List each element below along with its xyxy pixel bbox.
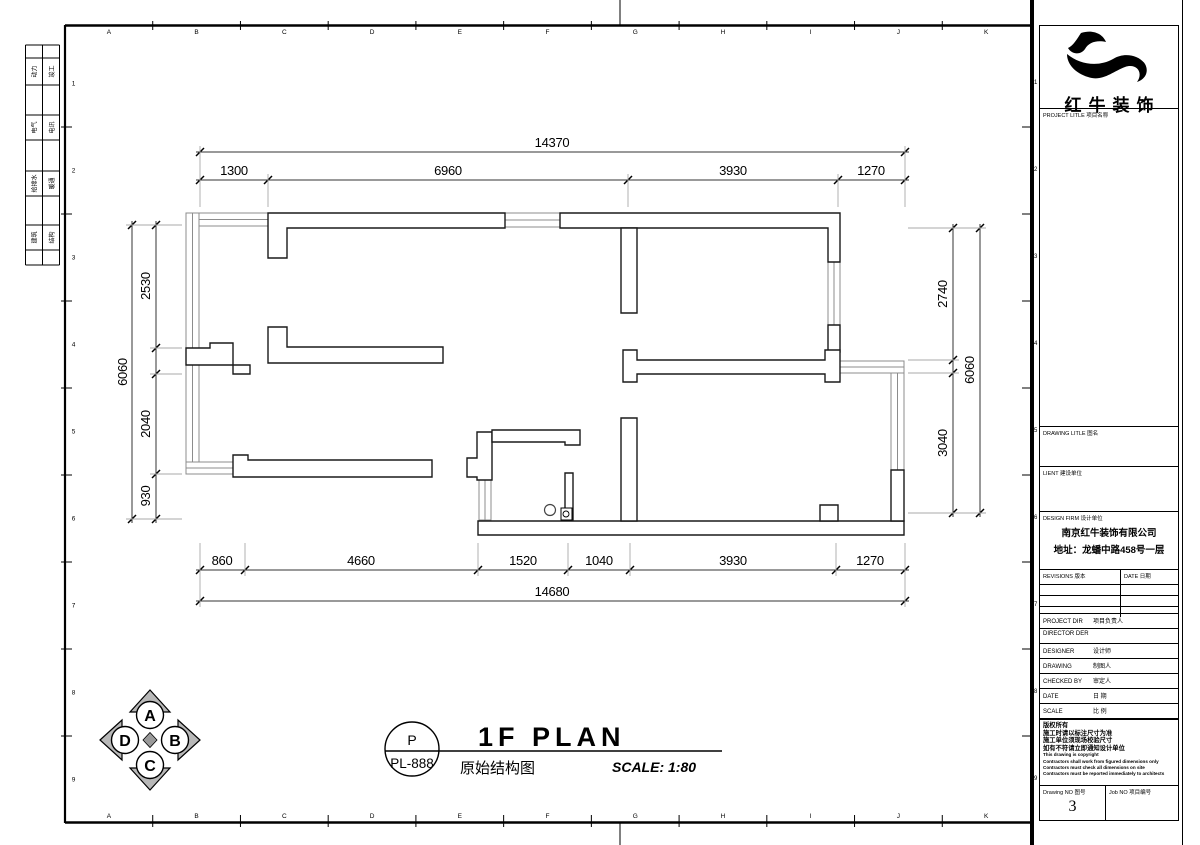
- row-label-cn: 审定人: [1093, 679, 1111, 685]
- note-line: 如有不符请立即通知设计单位: [1043, 745, 1178, 753]
- job-no-label: Job NO 项目编号: [1106, 786, 1178, 796]
- grid-number: 1: [72, 81, 76, 88]
- grid-letter: J: [897, 29, 900, 36]
- row-label-cn: 设计师: [1093, 649, 1111, 655]
- drawing-canvas: AABBCCDDEEFFGGHHIIJJKK123456789 动力 竣工 电气…: [0, 0, 1030, 845]
- grid-letter: C: [282, 29, 287, 36]
- wall: [820, 505, 838, 521]
- window-right-lower-vertical: [891, 373, 904, 470]
- compass-label-b: B: [169, 733, 181, 750]
- dim-label: 3040: [935, 429, 950, 457]
- floor-plan: [186, 213, 904, 535]
- revision-row-empty: [1040, 584, 1178, 595]
- discipline-label: 电气: [31, 121, 39, 133]
- dim-label: 6060: [115, 358, 130, 386]
- wall: [268, 213, 505, 258]
- grid-number: 7: [72, 603, 76, 610]
- dim-label: 2740: [935, 280, 950, 308]
- note-line: 施工单位须现场校验尺寸: [1043, 737, 1178, 745]
- drawing-number-section: Drawing NO 图号 3 Job NO 项目编号: [1040, 785, 1178, 821]
- row-label-en: DRAWING: [1043, 664, 1093, 670]
- grid-letter: D: [370, 813, 375, 820]
- discipline-label: 给排水: [31, 174, 39, 192]
- dim-label: 14680: [535, 584, 570, 599]
- design-firm-name: 南京红牛装饰有限公司: [1040, 525, 1178, 539]
- grid-letter: C: [282, 813, 287, 820]
- drawing-sheet: AABBCCDDEEFFGGHHIIJJKK123456789 动力 竣工 电气…: [0, 0, 1200, 845]
- dim-label: 4660: [347, 553, 375, 568]
- grid-number: 2: [1034, 167, 1037, 173]
- window-right-upper: [828, 262, 840, 325]
- title-block-table: 红牛装饰 PROJECT LITLE 项目名称 DRAWING LITLE 图名…: [1039, 25, 1179, 821]
- revisions-section: REVISIONS 版本 DATE 日期: [1040, 569, 1178, 613]
- dim-label: 3930: [719, 553, 747, 568]
- window-left-balcony: [186, 213, 199, 473]
- client-section: LIENT 建设单位: [1040, 466, 1178, 511]
- grid-number: 6: [72, 516, 76, 523]
- note-line: Contractors must be reported immediately…: [1043, 771, 1178, 777]
- company-logo: [1059, 29, 1159, 85]
- drawing-title-area: P PL-888 1F PLAN 原始结构图 SCALE: 1:80: [385, 722, 722, 777]
- dim-label: 860: [212, 553, 233, 568]
- compass-label-d: D: [119, 733, 131, 750]
- grid-letter: A: [107, 29, 112, 36]
- revision-row-empty: [1040, 606, 1178, 617]
- grid-letter: F: [546, 29, 550, 36]
- project-title-section: PROJECT LITLE 项目名称: [1040, 108, 1178, 426]
- design-firm-address: 地址：龙蟠中路458号一层: [1040, 542, 1178, 556]
- dim-label: 3930: [719, 163, 747, 178]
- drawing-no-value: 3: [1040, 798, 1105, 816]
- grid-letter: J: [897, 813, 900, 820]
- grid-letter: E: [458, 813, 463, 820]
- grid-letter: D: [370, 29, 375, 36]
- drawing-title-section: DRAWING LITLE 图名: [1040, 426, 1178, 466]
- grid-number: 8: [72, 690, 76, 697]
- compass-label-c: C: [144, 758, 156, 775]
- discipline-strip: 动力 竣工 电气 电讯 给排水 暖通 建筑 结构: [26, 45, 60, 265]
- window-bottom-left: [186, 462, 233, 474]
- wall: [828, 325, 840, 352]
- grid-letter: H: [721, 813, 726, 820]
- stamp-number: PL-888: [390, 756, 434, 771]
- grid-letter: F: [546, 813, 550, 820]
- wall: [621, 418, 637, 521]
- revisions-label: REVISIONS 版本: [1040, 570, 1121, 584]
- row-label-cn: 日 期: [1093, 694, 1107, 700]
- discipline-label: 暖通: [48, 177, 56, 189]
- grid-number: 5: [1034, 428, 1037, 434]
- grid-letter: I: [810, 29, 812, 36]
- director-row: DIRECTOR DER: [1040, 628, 1178, 643]
- grid-letter: G: [633, 29, 638, 36]
- wall: [478, 521, 904, 535]
- grid-number: 9: [1034, 776, 1037, 782]
- grid-number: 4: [1034, 341, 1037, 347]
- grid-letter: G: [633, 813, 638, 820]
- grid-number: 7: [1034, 602, 1037, 608]
- drawing-title-label: DRAWING LITLE 图名: [1040, 427, 1178, 437]
- drawing-no-label: Drawing NO 图号: [1040, 786, 1105, 796]
- grid-number: 2: [72, 168, 76, 175]
- dim-label: 2530: [138, 272, 153, 300]
- sheet-frame: [65, 0, 1030, 845]
- dim-label: 6960: [434, 163, 462, 178]
- copyright-notes: 版权所有 施工时请以标注尺寸为准 施工单位须现场校验尺寸 如有不符请立即通知设计…: [1040, 718, 1178, 785]
- grid-number: 3: [72, 255, 76, 262]
- grid-letter: K: [984, 813, 989, 820]
- grid-letter: A: [107, 813, 112, 820]
- design-firm-label: DESIGN FIRM 设计单位: [1040, 512, 1178, 522]
- client-label: LIENT 建设单位: [1040, 467, 1178, 477]
- discipline-label: 动力: [31, 65, 39, 77]
- logo-section: 红牛装饰: [1040, 26, 1178, 108]
- row-label-en: CHECKED BY: [1043, 679, 1093, 685]
- title-block-right-border: [1182, 0, 1183, 845]
- note-line: 版权所有: [1043, 722, 1178, 730]
- wall: [621, 228, 637, 313]
- dim-label: 6060: [962, 356, 977, 384]
- window-top-middle: [505, 213, 560, 227]
- row-label-cn: 比 例: [1093, 709, 1107, 715]
- job-no-cell: Job NO 项目编号: [1106, 786, 1178, 821]
- wall: [891, 470, 904, 521]
- grid-number: 8: [1034, 689, 1037, 695]
- designer-row: DESIGNER设计师: [1040, 643, 1178, 658]
- floor-drain-symbol: [545, 505, 556, 516]
- window-right-lower-horизontal: [840, 361, 904, 373]
- discipline-label: 竣工: [48, 65, 56, 77]
- design-firm-section: DESIGN FIRM 设计单位 南京红牛装饰有限公司 地址：龙蟠中路458号一…: [1040, 511, 1178, 569]
- grid-number: 3: [1034, 254, 1037, 260]
- row-label-en: DIRECTOR DER: [1043, 631, 1093, 637]
- wall: [623, 350, 840, 382]
- grid-number: 6: [1034, 515, 1037, 521]
- scale-row: SCALE比 例: [1040, 703, 1178, 718]
- wall: [560, 213, 840, 262]
- stamp-top-text: P: [407, 732, 416, 748]
- row-label-en: PROJECT DIR: [1043, 619, 1093, 625]
- checked-by-row: CHECKED BY审定人: [1040, 673, 1178, 688]
- row-label-cn: 项目负责人: [1093, 619, 1123, 625]
- plan-scale: SCALE: 1:80: [612, 759, 696, 775]
- row-label-en: SCALE: [1043, 709, 1093, 715]
- dim-label: 930: [138, 486, 153, 507]
- project-title-label: PROJECT LITLE 项目名称: [1040, 109, 1178, 119]
- discipline-label: 建筑: [31, 231, 39, 243]
- wall: [233, 455, 432, 477]
- grid-number: 1: [1034, 80, 1037, 86]
- dim-label: 2040: [138, 410, 153, 438]
- row-label-en: DATE: [1043, 694, 1093, 700]
- compass-center-diamond: [143, 733, 157, 748]
- compass-label-a: A: [144, 708, 156, 725]
- plan-title-en: 1F PLAN: [478, 722, 626, 752]
- date-row: DATE日 期: [1040, 688, 1178, 703]
- dim-label: 1520: [509, 553, 537, 568]
- drawing-row: DRAWING制图人: [1040, 658, 1178, 673]
- grid-number: 5: [72, 429, 76, 436]
- dim-label: 14370: [535, 135, 570, 150]
- grid-letter: K: [984, 29, 989, 36]
- grid-letter: B: [194, 813, 198, 820]
- compass: A B C D: [100, 690, 200, 790]
- date-column-label: DATE 日期: [1121, 570, 1151, 584]
- wall: [492, 430, 580, 445]
- title-block: 123456789 红牛装饰 PROJECT LITLE 项目名称 DRAWIN…: [1030, 0, 1200, 845]
- dim-label: 1040: [585, 553, 613, 568]
- grid-letter: I: [810, 813, 812, 820]
- drawing-no-cell: Drawing NO 图号 3: [1040, 786, 1106, 821]
- dim-label: 1270: [856, 553, 884, 568]
- grid-number: 9: [72, 777, 76, 784]
- grid-letter: E: [458, 29, 463, 36]
- discipline-label: 电讯: [48, 121, 56, 133]
- window-kitchen: [479, 480, 491, 520]
- wall: [268, 327, 443, 363]
- row-label-en: DESIGNER: [1043, 649, 1093, 655]
- dim-label: 1270: [857, 163, 885, 178]
- wall: [467, 432, 492, 480]
- dim-label: 1300: [220, 163, 248, 178]
- revisions-header: REVISIONS 版本 DATE 日期: [1040, 570, 1178, 584]
- discipline-label: 结构: [48, 231, 56, 243]
- grid-letter: H: [721, 29, 726, 36]
- revision-row-empty: [1040, 595, 1178, 606]
- plan-title-cn: 原始结构图: [460, 760, 535, 777]
- row-label-cn: 制图人: [1093, 664, 1111, 670]
- grid-number: 4: [72, 342, 76, 349]
- grid-letter: B: [194, 29, 198, 36]
